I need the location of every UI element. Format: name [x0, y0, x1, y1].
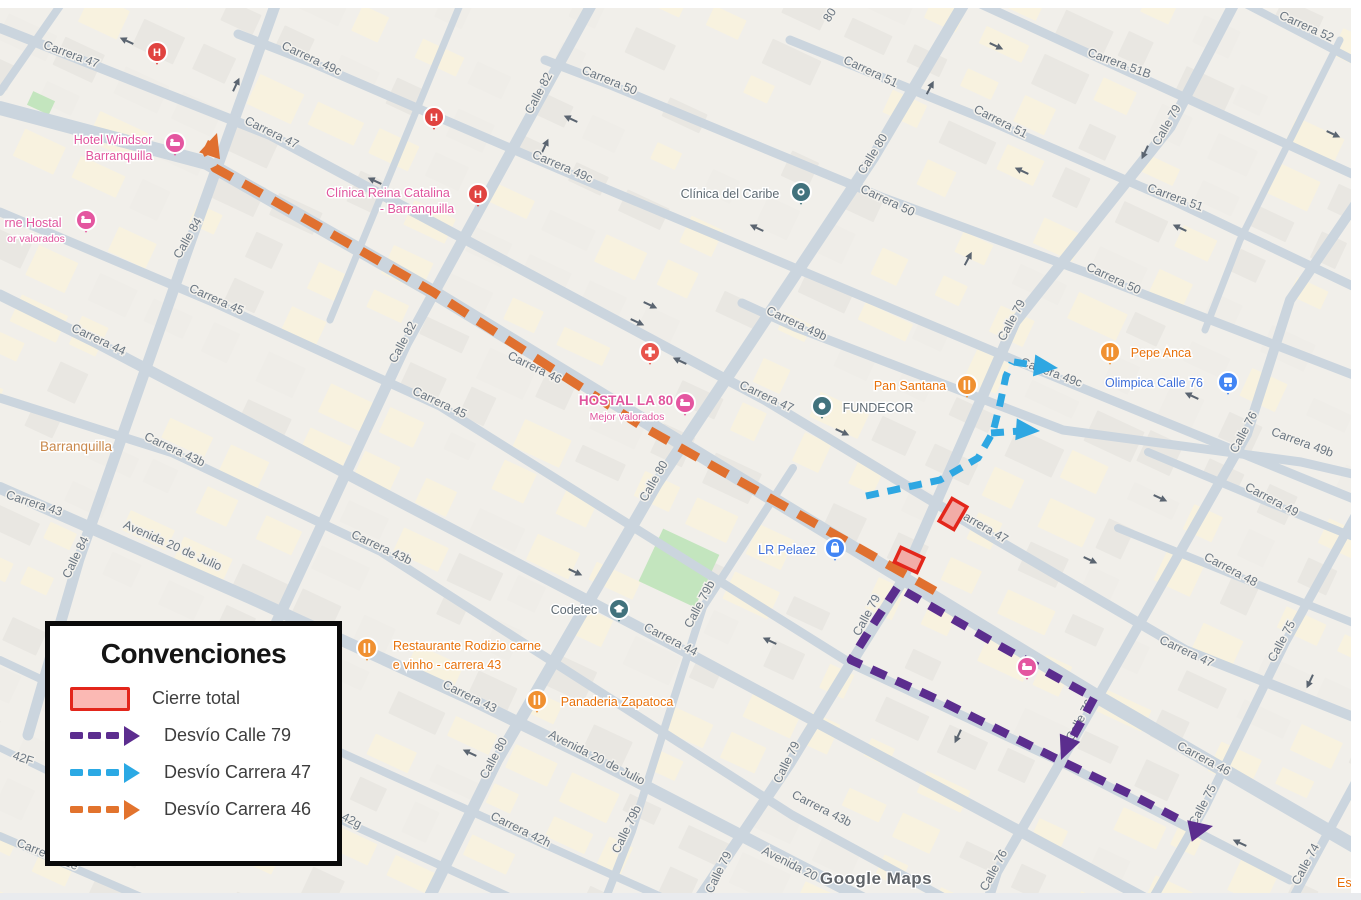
map-screenshot: Carrera 47Carrera 49cCarrera 47Carrera 5… — [0, 0, 1361, 900]
svg-text:H: H — [430, 112, 438, 124]
poi-label[interactable]: LR Pelaez — [758, 543, 816, 557]
poi-label[interactable]: Hotel Windsor — [74, 133, 153, 147]
right-edge-strip — [1351, 0, 1361, 900]
legend-item-label: Cierre total — [152, 688, 240, 709]
poi-label[interactable]: Barranquilla — [86, 149, 153, 163]
legend-title: Convenciones — [50, 638, 337, 670]
blue-dashed-arrow-swatch — [70, 763, 142, 783]
legend-item-desvio-calle-79: Desvío Calle 79 — [50, 717, 337, 754]
arrow-right-icon — [124, 800, 140, 820]
svg-text:H: H — [153, 47, 161, 59]
closure-swatch — [70, 687, 130, 711]
poi-label[interactable]: Clínica Reina Catalina — [326, 186, 450, 200]
poi-label[interactable]: Clínica del Caribe — [681, 187, 780, 201]
legend-item-desvio-carrera-47: Desvío Carrera 47 — [50, 754, 337, 791]
poi-label[interactable]: Restaurante Rodizio carne — [393, 639, 541, 653]
poi-label[interactable]: Mejor valorados — [590, 411, 665, 423]
poi-label[interactable]: Codetec — [551, 603, 598, 617]
poi-label[interactable]: Panaderia Zapatoca — [561, 695, 674, 709]
bottom-edge-strip — [0, 893, 1361, 900]
poi-label[interactable]: or valorados — [7, 233, 65, 245]
legend: Convenciones Cierre total Desvío Calle 7… — [45, 621, 342, 866]
poi-label[interactable]: Pepe Anca — [1131, 346, 1192, 360]
poi-label[interactable]: - Barranquilla — [380, 202, 454, 216]
poi-label[interactable]: e vinho - carrera 43 — [393, 658, 501, 672]
arrow-right-icon — [124, 726, 140, 746]
top-edge-strip — [0, 0, 1361, 8]
legend-item-label: Desvío Calle 79 — [164, 725, 291, 746]
google-maps-watermark: Google Maps — [820, 869, 932, 888]
legend-item-cierre-total: Cierre total — [50, 680, 337, 717]
poi-label[interactable]: rne Hostal — [5, 216, 62, 230]
poi-label[interactable]: FUNDECOR — [843, 401, 914, 415]
poi-label[interactable]: HOSTAL LA 80 — [579, 393, 673, 408]
orange-dashed-arrow-swatch — [70, 800, 142, 820]
svg-text:H: H — [474, 189, 482, 201]
city-label: Barranquilla — [40, 439, 113, 454]
legend-item-label: Desvío Carrera 46 — [164, 799, 311, 820]
poi-label[interactable]: Pan Santana — [874, 379, 946, 393]
legend-item-desvio-carrera-46: Desvío Carrera 46 — [50, 791, 337, 828]
purple-dashed-arrow-swatch — [70, 726, 142, 746]
poi-label[interactable]: Olimpica Calle 76 — [1105, 376, 1203, 390]
arrow-right-icon — [124, 763, 140, 783]
legend-item-label: Desvío Carrera 47 — [164, 762, 311, 783]
